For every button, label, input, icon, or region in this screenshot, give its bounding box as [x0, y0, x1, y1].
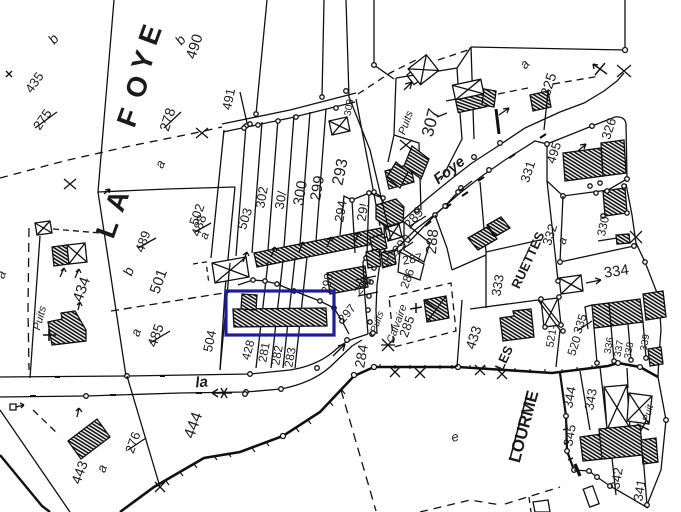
svg-text:334: 334 — [603, 261, 630, 281]
svg-text:30/: 30/ — [272, 190, 290, 211]
svg-text:la: la — [195, 374, 209, 392]
svg-text:29!: 29! — [354, 202, 372, 222]
svg-text:288: 288 — [423, 228, 442, 254]
